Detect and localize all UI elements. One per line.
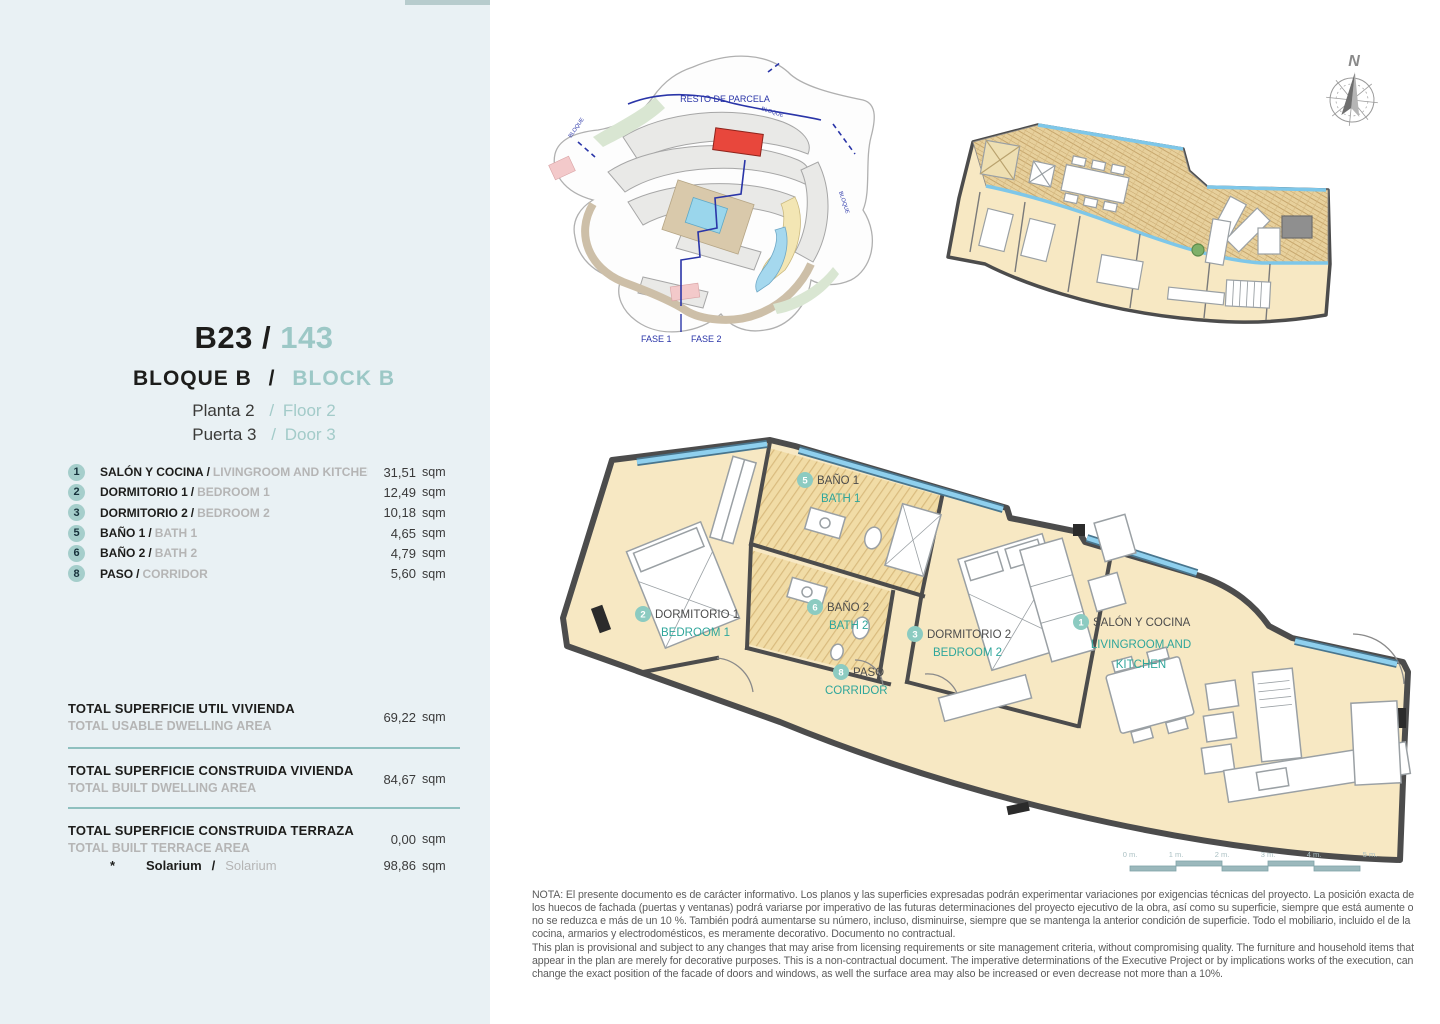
scale-segments: [1130, 861, 1360, 871]
room-row-bedroom1: 2 DORMITORIO 1/BEDROOM 1 12,49 sqm: [68, 482, 460, 502]
disclaimer-note: NOTA: El presente documento es de caráct…: [532, 889, 1416, 981]
room-name-en: LIVINGROOM AND KITCHEN: [213, 465, 368, 479]
svg-text:BAÑO 2: BAÑO 2: [827, 601, 869, 614]
total-built-area: TOTAL SUPERFICIE CONSTRUIDA VIVIENDA TOT…: [68, 756, 460, 802]
room-row-salon: 1 SALÓN Y COCINA/LIVINGROOM AND KITCHEN …: [68, 462, 460, 482]
svg-text:KITCHEN: KITCHEN: [1116, 659, 1166, 671]
floor-es: Planta 2: [192, 401, 254, 420]
svg-text:3: 3: [912, 630, 917, 641]
block-es: BLOQUE B: [133, 367, 252, 390]
room-row-bath1: 5 BAÑO 1/BATH 1 4,65 sqm: [68, 523, 460, 543]
solarium-value: 98,86: [368, 858, 416, 873]
svg-text:4 m.: 4 m.: [1307, 850, 1322, 859]
svg-text:CORRIDOR: CORRIDOR: [825, 685, 888, 697]
scale-bar: 0 m. 1 m. 2 m. 3 m. 4 m. 5 m.: [1120, 846, 1382, 882]
svg-text:DORMITORIO 2: DORMITORIO 2: [927, 629, 1011, 641]
svg-text:BATH 2: BATH 2: [829, 620, 868, 632]
floorplan-sheet: { "ui": {"slash": "/", "star": "*"}, "si…: [0, 0, 1440, 1024]
terrace-sofa: [1258, 228, 1280, 254]
floor-line: Planta 2 / Floor 2: [68, 401, 460, 421]
svg-text:5 m.: 5 m.: [1363, 850, 1378, 859]
disclaimer-en: This plan is provisional and subject to …: [532, 942, 1416, 981]
svg-text:2: 2: [640, 610, 645, 621]
unit-code: B23: [195, 320, 253, 355]
block-line: BLOQUE B / BLOCK B: [68, 367, 460, 391]
solarium-row: * Solarium / Solarium 98,86 sqm: [68, 858, 460, 873]
svg-text:5: 5: [802, 476, 808, 487]
svg-text:6: 6: [812, 603, 817, 614]
floor-slash: /: [269, 401, 274, 420]
divider: [68, 807, 460, 809]
svg-text:DORMITORIO 1: DORMITORIO 1: [655, 609, 739, 621]
room-number-badge: 1: [68, 464, 85, 481]
terrace-plant: [1192, 244, 1204, 256]
room-row-corridor: 8 PASO/CORRIDOR 5,60 sqm: [68, 563, 460, 583]
svg-text:2 m.: 2 m.: [1215, 850, 1230, 859]
fase2-label: FASE 2: [691, 334, 722, 344]
umbrella: [1029, 161, 1055, 187]
door-en: Door 3: [285, 425, 336, 444]
room-row-bedroom2: 3 DORMITORIO 2/BEDROOM 2 10,18 sqm: [68, 503, 460, 523]
total-title-es: TOTAL SUPERFICIE UTIL VIVIENDA: [68, 701, 368, 716]
scale-labels: 0 m. 1 m. 2 m. 3 m. 4 m. 5 m.: [1123, 850, 1378, 859]
total-unit: sqm: [416, 710, 460, 724]
svg-text:1: 1: [1078, 618, 1084, 629]
room-row-bath2: 6 BAÑO 2/BATH 2 4,79 sqm: [68, 543, 460, 563]
svg-text:BEDROOM 2: BEDROOM 2: [933, 647, 1002, 659]
svg-text:0 m.: 0 m.: [1123, 850, 1138, 859]
divider: [68, 747, 460, 749]
room-area-list: 1 SALÓN Y COCINA/LIVINGROOM AND KITCHEN …: [68, 462, 460, 584]
fase1-label: FASE 1: [641, 334, 672, 344]
room-number-badge: 8: [68, 565, 85, 582]
block-slash: /: [269, 367, 276, 390]
floor-en: Floor 2: [283, 401, 336, 420]
svg-text:BEDROOM 1: BEDROOM 1: [661, 627, 730, 639]
unit-number: 143: [280, 320, 333, 355]
solarium-level-plan: [930, 112, 1350, 352]
solarium-star: *: [68, 858, 132, 873]
svg-text:3 m.: 3 m.: [1261, 850, 1276, 859]
svg-text:BATH 1: BATH 1: [821, 493, 860, 505]
room-area-unit: sqm: [416, 465, 460, 479]
room-number-badge: 2: [68, 484, 85, 501]
svg-text:1 m.: 1 m.: [1169, 850, 1184, 859]
total-value: 69,22: [368, 710, 416, 725]
disclaimer-es: NOTA: El presente documento es de caráct…: [532, 889, 1416, 942]
upper-stairs: [1225, 280, 1270, 308]
door-slash: /: [271, 425, 276, 444]
site-plan: RESTO DE PARCELA BLOQUE BLOQUE BLOQUE FA…: [533, 42, 878, 367]
solarium-en: Solarium: [225, 858, 368, 873]
title-slash: /: [262, 320, 271, 355]
block-en: BLOCK B: [292, 367, 395, 390]
total-title-en: TOTAL USABLE DWELLING AREA: [68, 719, 368, 733]
pergola: [980, 140, 1019, 179]
total-terrace-area: TOTAL SUPERFICIE CONSTRUIDA TERRAZA TOTA…: [68, 816, 460, 862]
svg-text:LIVINGROOM AND: LIVINGROOM AND: [1091, 639, 1191, 651]
room-area-value: 31,51: [368, 465, 416, 480]
total-usable-area: TOTAL SUPERFICIE UTIL VIVIENDA TOTAL USA…: [68, 694, 460, 740]
room-number-badge: 3: [68, 504, 85, 521]
door-line: Puerta 3 / Door 3: [68, 425, 460, 445]
door-es: Puerta 3: [192, 425, 256, 444]
terrace-sofa-dark: [1282, 216, 1312, 238]
main-floor-plan: 5 BAÑO 1 BATH 1 2 DORMITORIO 1 BEDROOM 1…: [555, 420, 1415, 895]
room-name-es: SALÓN Y COCINA: [100, 465, 204, 479]
top-accent-stripe: [405, 0, 490, 5]
solarium-unit: sqm: [416, 859, 460, 873]
unit-title: B23 / 143: [68, 320, 460, 356]
solarium-es: Solarium: [146, 858, 202, 873]
room-number-badge: 6: [68, 545, 85, 562]
svg-text:PASO: PASO: [853, 667, 884, 679]
svg-text:8: 8: [838, 668, 843, 679]
svg-text:BAÑO 1: BAÑO 1: [817, 474, 859, 487]
svg-text:SALÓN Y COCINA: SALÓN Y COCINA: [1093, 616, 1191, 629]
compass-north-label: N: [1348, 53, 1360, 70]
resto-de-parcela-label: RESTO DE PARCELA: [680, 94, 770, 104]
room-number-badge: 5: [68, 525, 85, 542]
